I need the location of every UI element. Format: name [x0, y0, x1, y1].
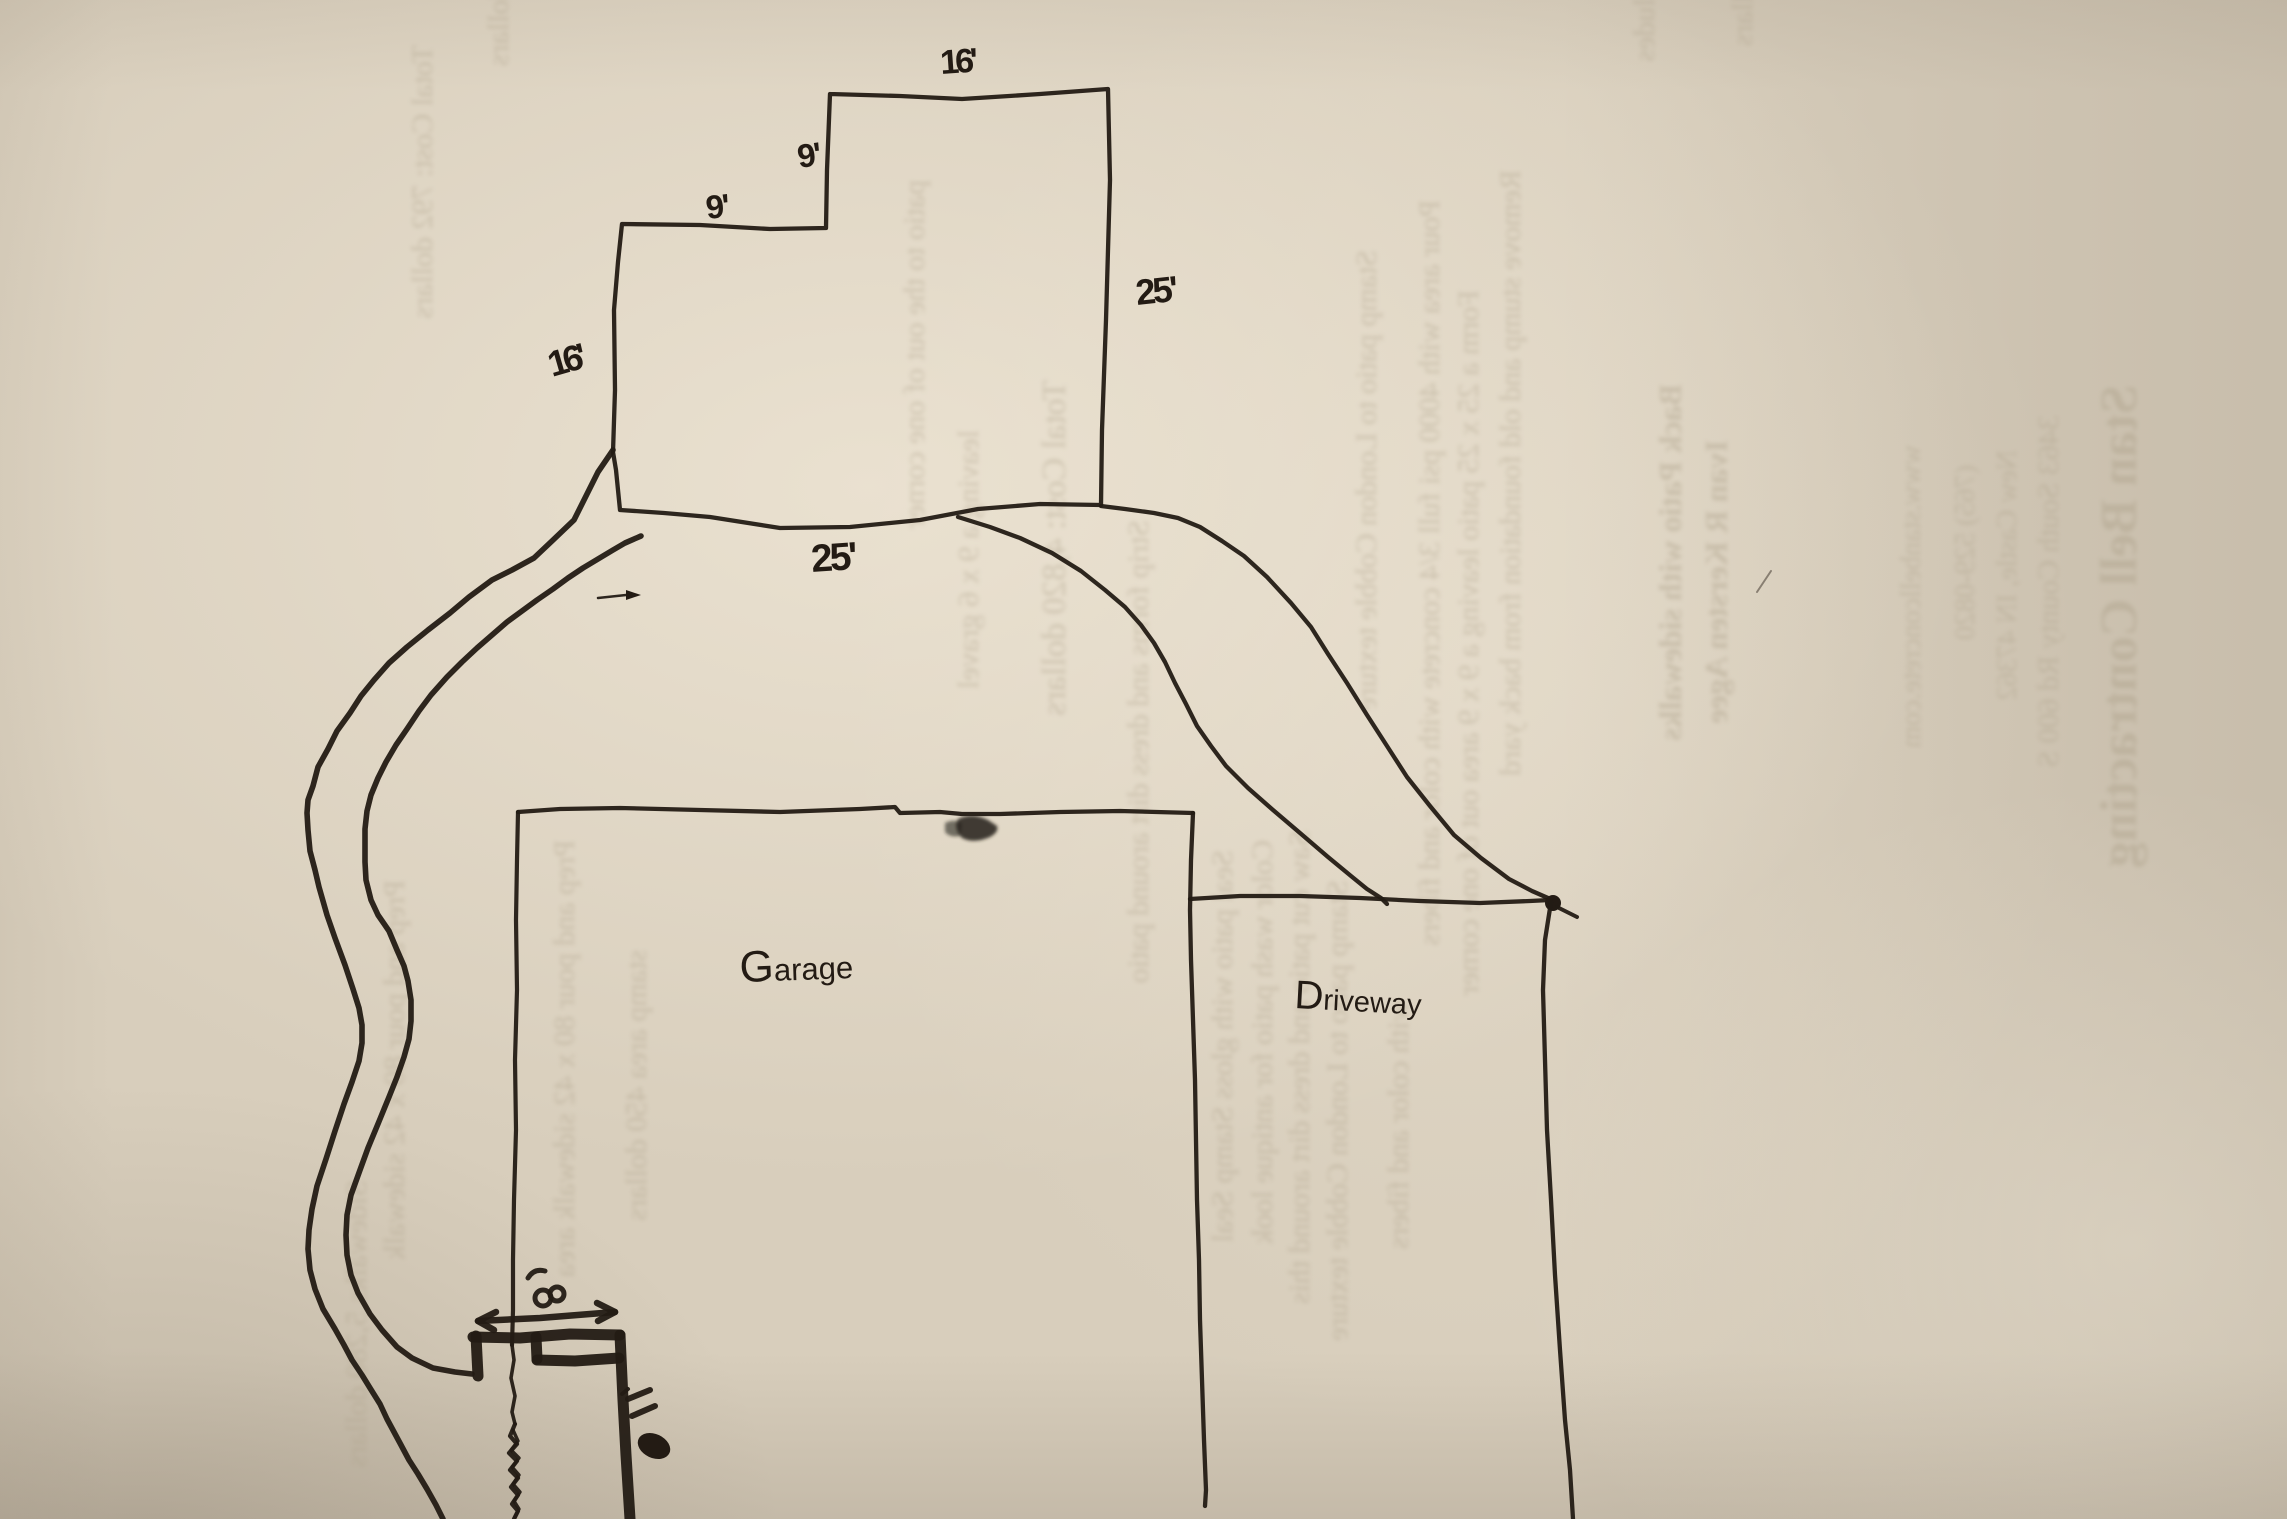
svg-text:16': 16' [939, 42, 978, 82]
svg-text:25': 25' [1134, 268, 1179, 313]
svg-text:9': 9' [795, 135, 823, 175]
svg-text:25': 25' [810, 535, 858, 581]
svg-text:9': 9' [704, 187, 731, 226]
svg-text:Garage: Garage [739, 939, 854, 992]
svg-text:16': 16' [543, 335, 590, 385]
svg-text:Driveway: Driveway [1294, 973, 1424, 1024]
